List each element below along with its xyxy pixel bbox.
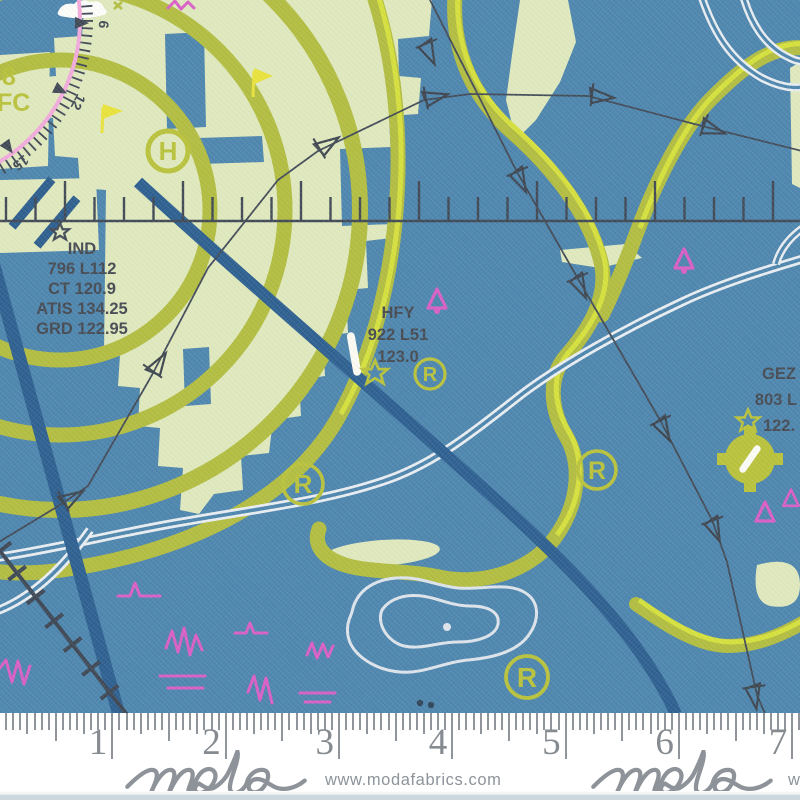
edge-label-8: 8 — [2, 63, 16, 91]
heliport-letter: H — [159, 136, 178, 166]
svg-text:R: R — [588, 457, 606, 485]
svg-text:122.: 122. — [763, 417, 795, 435]
svg-text:CT 120.9: CT 120.9 — [48, 280, 116, 298]
aeronautical-chart-print: 6 12 15 — [0, 0, 800, 713]
edge-label-fc: FC — [0, 89, 30, 117]
svg-text:GEZ: GEZ — [762, 365, 796, 383]
svg-text:803 L: 803 L — [755, 391, 797, 409]
fabric-swatch-photo: 6 12 15 — [0, 0, 800, 800]
brand-url: www.modafabrics.com — [788, 771, 800, 790]
svg-text:HFY: HFY — [382, 304, 415, 322]
chart-artwork: 6 12 15 — [0, 0, 800, 713]
svg-text:796 L112: 796 L112 — [48, 260, 117, 278]
svg-text:922 L51: 922 L51 — [368, 326, 429, 344]
svg-text:R: R — [294, 469, 313, 499]
photo-edge-strip — [0, 795, 800, 800]
svg-text:GRD 122.95: GRD 122.95 — [36, 320, 128, 338]
brand-url: www.modafabrics.com — [325, 771, 501, 790]
svg-text:123.0: 123.0 — [377, 348, 418, 366]
svg-text:ATIS 134.25: ATIS 134.25 — [36, 300, 127, 318]
svg-text:R: R — [423, 364, 438, 386]
svg-text:R: R — [517, 662, 537, 693]
svg-text:IND: IND — [68, 240, 97, 258]
